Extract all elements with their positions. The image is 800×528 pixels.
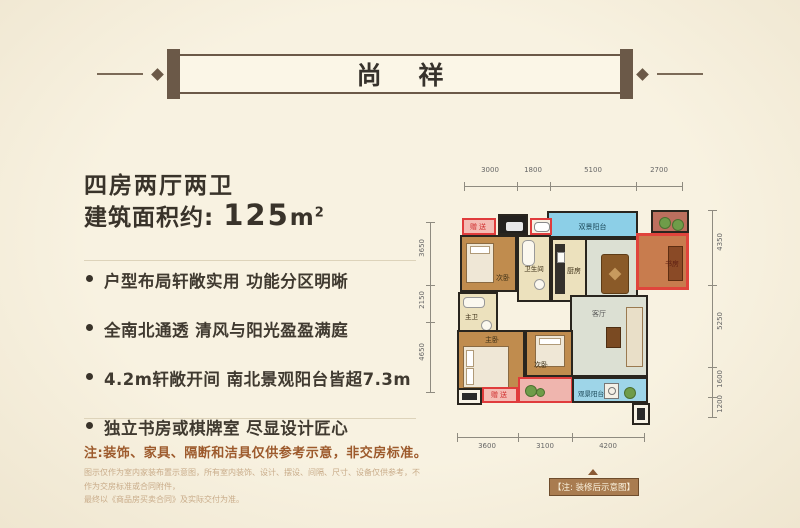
room-label: 书房: [665, 259, 679, 269]
dimension-label: 4650: [418, 343, 426, 361]
dimension-label: 4350: [716, 233, 724, 251]
dimension-line: [430, 222, 431, 392]
banner-line-left: [97, 73, 143, 75]
room-bedroom-2: 次卧: [460, 235, 517, 292]
dimension-label: 5100: [584, 166, 602, 174]
room-balcony-south: 观景阳台: [572, 377, 648, 403]
bullet-dot-icon: [86, 324, 93, 331]
banner-box: 尚 祥: [172, 54, 628, 94]
dimension-label: 5250: [716, 312, 724, 330]
bed-icon: [466, 243, 494, 283]
planter-area: [651, 210, 689, 233]
bathtub-icon: [530, 218, 552, 235]
room-kitchen: 厨房: [551, 238, 587, 302]
area-value: 125: [223, 198, 290, 232]
dimension-tick: [682, 182, 683, 191]
dimension-tick: [426, 222, 435, 223]
area-exponent: 2: [315, 205, 325, 220]
pillow-icon: [466, 368, 474, 385]
pillow-icon: [466, 350, 474, 367]
room-label: 主卫: [465, 311, 478, 321]
dimension-tick: [426, 285, 435, 286]
room-label: 卫生间: [524, 263, 544, 273]
feature-text: 全南北通透 清风与阳光盈盈满庭: [104, 317, 348, 341]
dining-table-icon: [601, 254, 629, 294]
gift-label: 赠送: [470, 222, 488, 232]
dimension-tick: [517, 182, 518, 191]
page-title: 尚 祥: [343, 56, 458, 92]
dimension-tick: [708, 210, 717, 211]
dimension-label: 2700: [650, 166, 668, 174]
dimension-tick: [457, 433, 458, 442]
dimension-line: [457, 437, 644, 438]
bullet-dot-icon: [86, 373, 93, 380]
dimension-tick: [644, 433, 645, 442]
disclaimer-text: 图示仅作为室内家装布置示意图，所有室内装饰、设计、摆设、间隔、尺寸、设备仅供参考…: [84, 466, 426, 507]
plant-icon: [536, 388, 545, 397]
feature-item: 4.2m轩敞开间 南北景观阳台皆超7.3m: [84, 366, 411, 390]
room-balcony-north: 双景阳台: [547, 211, 638, 238]
pillow-icon: [470, 246, 490, 254]
toilet-icon: [534, 279, 545, 290]
dimension-label: 3000: [481, 166, 499, 174]
room-label: 双景阳台: [579, 222, 607, 232]
dimension-line: [464, 186, 683, 187]
title-banner: 尚 祥: [0, 52, 800, 96]
dimension-line: [712, 210, 713, 417]
disclaimer-line: 图示仅作为室内家装布置示意图，所有室内装饰、设计、摆设、间隔、尺寸、设备仅供参考…: [84, 466, 426, 493]
ac-unit-icon: [457, 388, 482, 405]
ac-grille: [637, 408, 645, 420]
feature-text: 户型布局轩敞实用 功能分区明晰: [104, 268, 348, 292]
dimension-tick: [426, 392, 435, 393]
stove-icon: [498, 214, 528, 235]
dimension-label: 1600: [716, 370, 724, 388]
gift-area-top: 赠送: [462, 218, 496, 235]
banner-endcap-left: [167, 49, 180, 99]
area-heading: 建筑面积约: 125m2: [84, 198, 325, 232]
disclaimer-line: 最终以《商品房买卖合同》及实际交付为准。: [84, 493, 426, 507]
gift-balcony-area: [518, 377, 573, 403]
washer-drum: [608, 387, 616, 395]
divider-top: [84, 260, 416, 261]
floor-plan: 3000 1800 5100 2700 3600 3100 4200 4350 …: [420, 158, 780, 503]
info-panel: 四房两厅两卫 建筑面积约: 125m2 户型布局轩敞实用 功能分区明晰 全南北通…: [84, 166, 426, 506]
room-label: 客厅: [592, 309, 606, 319]
brochure-page: 尚 祥 四房两厅两卫 建筑面积约: 125m2 户型布局轩敞实用 功能分区明晰 …: [0, 0, 800, 528]
room-bedroom-3: 次卧: [525, 330, 573, 377]
dimension-tick: [636, 182, 637, 191]
bullet-dot-icon: [86, 275, 93, 282]
dimension-label: 2150: [418, 291, 426, 309]
gift-area-bottom: 赠送: [482, 387, 518, 403]
dimension-tick: [550, 182, 551, 191]
plant-icon: [659, 217, 671, 229]
bathtub-basin: [534, 222, 550, 232]
feature-text: 4.2m轩敞开间 南北景观阳台皆超7.3m: [104, 366, 411, 390]
feature-list: 户型布局轩敞实用 功能分区明晰 全南北通透 清风与阳光盈盈满庭 4.2m轩敞开间…: [84, 268, 411, 464]
room-label: 主卧: [485, 335, 499, 345]
plant-icon: [624, 387, 636, 399]
triangle-icon: [588, 469, 598, 475]
gift-label: 赠送: [491, 390, 509, 400]
room-label: 厨房: [567, 266, 581, 276]
sofa-icon: [626, 307, 643, 367]
dimension-label: 1200: [716, 395, 724, 413]
plan-caption: 【注: 装修后示意图】: [549, 478, 639, 496]
dimension-tick: [708, 285, 717, 286]
diamond-icon-left: [151, 68, 164, 81]
ac-grille: [462, 393, 477, 400]
feature-item: 全南北通透 清风与阳光盈盈满庭: [84, 317, 411, 341]
dimension-label: 3100: [536, 442, 554, 450]
room-bathroom: 卫生间: [517, 235, 551, 302]
plant-icon: [672, 219, 684, 231]
room-label: 次卧: [534, 360, 548, 370]
divider-bottom: [84, 418, 416, 419]
bullet-dot-icon: [86, 422, 93, 429]
dimension-tick: [708, 367, 717, 368]
dimension-label: 4200: [599, 442, 617, 450]
dimension-label: 1800: [524, 166, 542, 174]
diamond-icon-right: [636, 68, 649, 81]
banner-line-right: [657, 73, 703, 75]
bed-icon: [463, 346, 509, 388]
area-unit: m: [290, 205, 315, 231]
dimension-tick: [464, 182, 465, 191]
dimension-tick: [426, 322, 435, 323]
room-living: 客厅: [570, 295, 648, 377]
dimension-tick: [518, 433, 519, 442]
area-label: 建筑面积约:: [84, 205, 214, 231]
feature-item: 户型布局轩敞实用 功能分区明晰: [84, 268, 411, 292]
dimension-tick: [708, 417, 717, 418]
banner-endcap-right: [620, 49, 633, 99]
dimension-tick: [572, 433, 573, 442]
dimension-label: 3600: [478, 442, 496, 450]
table-center-decor: [609, 268, 622, 281]
ac-unit-icon: [632, 403, 650, 425]
stove-top: [506, 222, 523, 231]
room-label: 观景阳台: [578, 388, 604, 398]
note-text: 注:装饰、家具、隔断和洁具仅供参考示意，非交房标准。: [84, 442, 427, 461]
room-label: 次卧: [496, 273, 510, 283]
room-study: 书房: [636, 233, 689, 290]
sink-icon: [557, 252, 565, 263]
bathtub-icon: [463, 297, 485, 308]
dimension-label: 3650: [418, 239, 426, 257]
pillow-icon: [539, 338, 561, 345]
coffee-table-icon: [606, 327, 621, 348]
unit-type-heading: 四房两厅两卫: [84, 166, 234, 200]
washing-machine-icon: [604, 383, 619, 399]
